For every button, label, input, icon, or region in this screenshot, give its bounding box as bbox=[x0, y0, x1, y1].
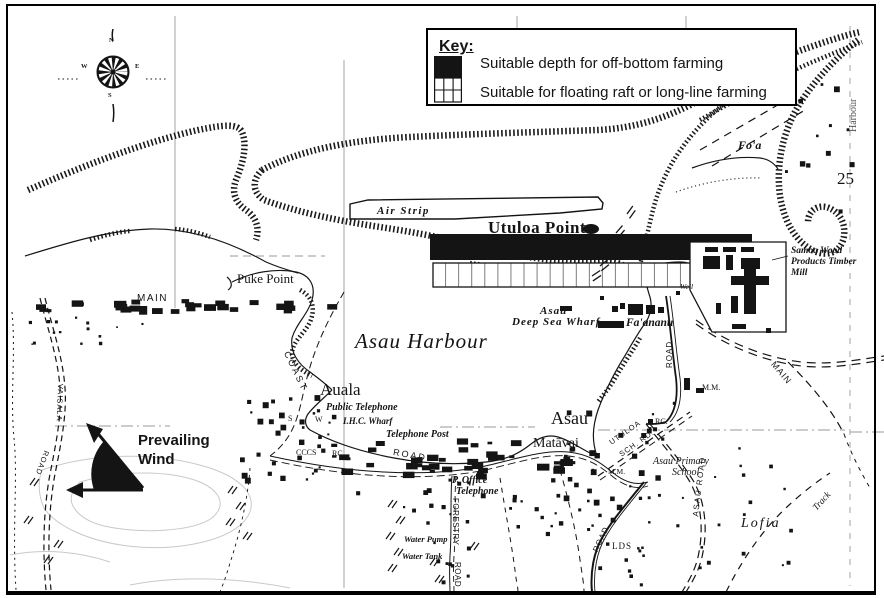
legend-title: Key: bbox=[439, 38, 474, 56]
label-public-telephone: Public Telephone bbox=[326, 403, 398, 413]
label-asau-harbour: Asau Harbour bbox=[355, 331, 488, 352]
label-vaisala: VAISALA bbox=[55, 384, 64, 422]
label-forestry-road: ROAD bbox=[453, 562, 461, 587]
label-rc-east: RC. bbox=[655, 418, 668, 426]
label-rc-west: RC. bbox=[332, 450, 345, 458]
legend-black-square-icon bbox=[434, 56, 462, 78]
legend-symbols bbox=[434, 56, 462, 103]
label-main-road-west: MAIN bbox=[137, 294, 168, 304]
label-post-office-2: Telephone bbox=[456, 487, 498, 497]
label-post-office-1: P. Office bbox=[452, 476, 487, 486]
label-lds: LDS bbox=[612, 542, 632, 551]
label-foa: Fo'a bbox=[738, 139, 761, 151]
label-puke-point: Puke Point bbox=[237, 272, 294, 285]
legend-item-raft: Suitable for floating raft or long-line … bbox=[480, 84, 767, 101]
label-well: Well bbox=[680, 283, 693, 291]
label-s-marker: S bbox=[288, 415, 292, 423]
label-water-tank: Water Tank bbox=[402, 552, 442, 561]
label-timber-mill-1: Samoa Wood bbox=[791, 247, 842, 257]
label-water-pump: Water Pump bbox=[404, 535, 448, 544]
label-ihc-wharf: I.H.C. Wharf bbox=[343, 417, 392, 426]
label-asau-village: Asau bbox=[551, 409, 588, 427]
label-timber-mill-3: Mill bbox=[791, 269, 807, 279]
label-prevailing-wind-1: Prevailing bbox=[138, 433, 210, 448]
palm-symbols bbox=[24, 478, 479, 583]
label-air-strip: Air Strip bbox=[377, 206, 430, 217]
label-sheet-number: 25 bbox=[837, 170, 854, 187]
label-faananu: Fa'ananu bbox=[626, 318, 673, 330]
label-auala: Auala bbox=[320, 381, 361, 398]
compass-n: N bbox=[109, 38, 114, 45]
compass-w: W bbox=[81, 64, 88, 71]
label-telephone-post: Telephone Post bbox=[386, 430, 449, 440]
label-timber-mill-2: Products Timber bbox=[791, 258, 856, 268]
compass-e: E bbox=[135, 64, 139, 71]
legend-item-off-bottom: Suitable depth for off-bottom farming bbox=[480, 55, 723, 72]
label-deep-sea-wharf-2: Deep Sea Wharf bbox=[512, 317, 600, 328]
label-cccs: CCCS bbox=[296, 449, 316, 457]
label-w-marker: W bbox=[315, 416, 323, 424]
label-utuloa-point: Utuloa Point bbox=[488, 219, 586, 236]
map-sheet: Fo'a Harbour 25 Air Strip Utuloa Point P… bbox=[0, 0, 884, 598]
label-mm-west: M.M. bbox=[608, 468, 625, 476]
label-lofia: Lofia bbox=[741, 517, 781, 531]
label-mm-east: M.M. bbox=[702, 384, 720, 392]
legend-box: Key: Suitable depth for off-bottom farmi… bbox=[426, 28, 797, 106]
label-matavai: Matāvai bbox=[533, 437, 579, 451]
label-road-east: ROAD bbox=[666, 341, 674, 368]
label-forestry: FORESTRY bbox=[451, 498, 459, 545]
label-edge-vertical: Harbour bbox=[849, 99, 859, 132]
compass-s: S bbox=[108, 93, 112, 100]
contour-lines bbox=[10, 456, 290, 588]
label-prevailing-wind-2: Wind bbox=[138, 452, 175, 467]
